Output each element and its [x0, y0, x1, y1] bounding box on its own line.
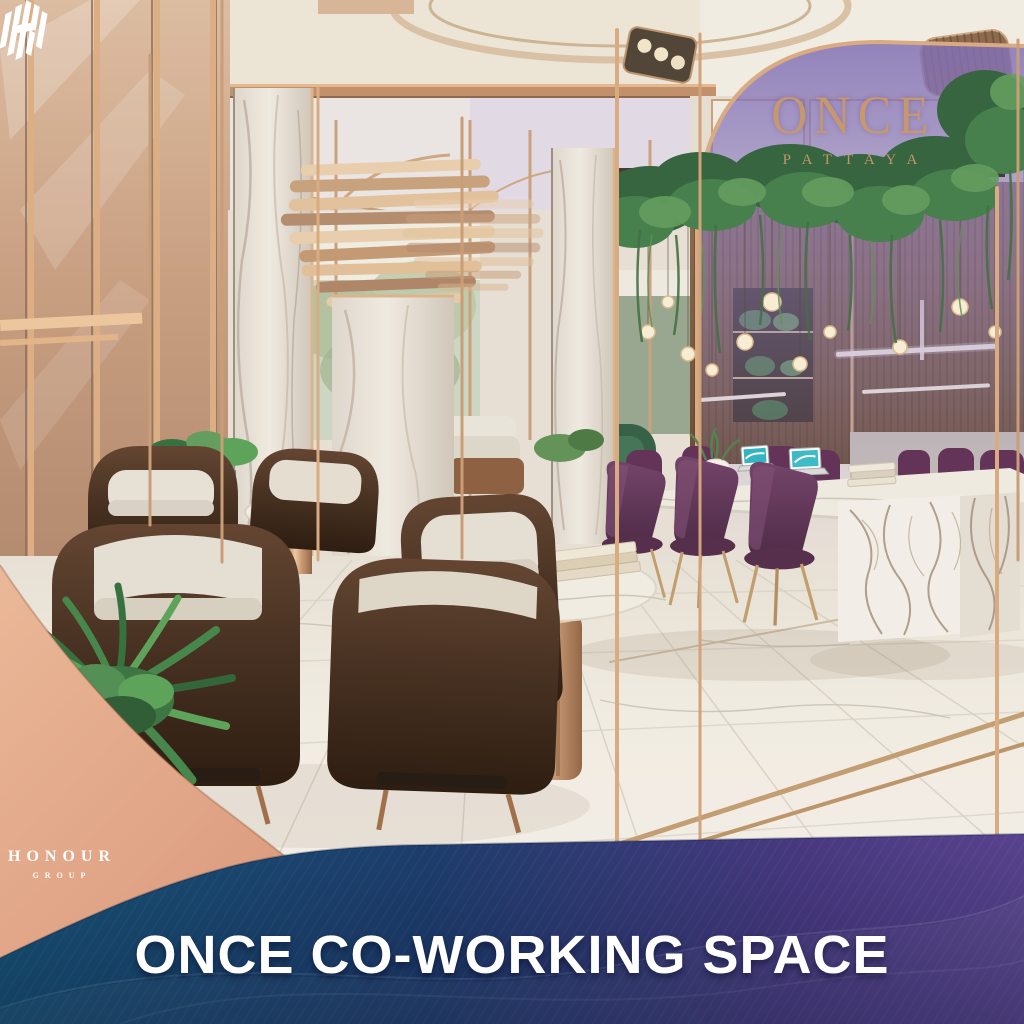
honour-logo-subtitle: GROUP [0, 871, 118, 880]
banner-title: ONCE CO-WORKING SPACE [0, 924, 1024, 986]
once-logo: ONCE PATTAYA [690, 84, 1010, 169]
honour-logo-icon [0, 0, 48, 60]
honour-logo: HONOUR GROUP [0, 848, 118, 880]
once-logo-subtitle: PATTAYA [690, 152, 1010, 169]
once-logo-title: ONCE [703, 84, 997, 146]
ad-image: ONCE PATTAYA HONOUR GROUP ONCE CO-WORKIN… [0, 0, 1024, 1024]
honour-logo-title: HONOUR [0, 848, 118, 866]
